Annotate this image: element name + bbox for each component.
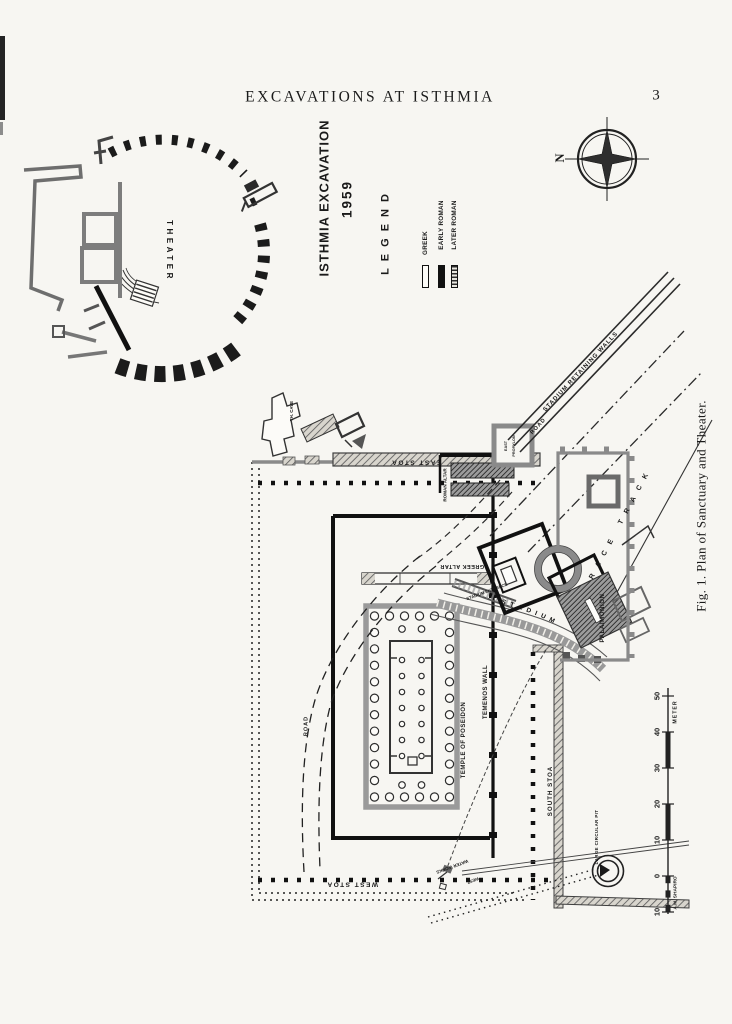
roman-altar-label: ROMAN ALTAR bbox=[444, 468, 449, 501]
theater-plan bbox=[24, 137, 277, 374]
compass-n-label: N bbox=[554, 153, 567, 162]
scale-tick-40: 40 bbox=[653, 728, 661, 736]
greek-altar-label: GREEK ALTAR bbox=[440, 562, 484, 568]
scale-unit-label: METER bbox=[673, 700, 678, 723]
road-west-label: ROAD bbox=[304, 716, 310, 736]
scale-tick-20: 20 bbox=[653, 800, 661, 808]
theater-cave-label: TH. CAVE bbox=[290, 401, 294, 421]
legend-swatch-later-roman bbox=[451, 265, 458, 288]
legend-swatch-early-roman bbox=[438, 265, 445, 288]
plan-title-line2: 1959 bbox=[340, 180, 354, 218]
legend-item-greek: GREEK bbox=[423, 231, 429, 255]
west-stoa-label: WEST STOA bbox=[326, 880, 378, 887]
legend-heading: LEGEND bbox=[381, 187, 392, 275]
scale-tick-minus10: 10 bbox=[653, 908, 661, 916]
south-stoa-label: SOUTH STOA bbox=[548, 766, 554, 816]
page-number: 3 bbox=[652, 89, 660, 104]
roman-altar-structure bbox=[451, 463, 514, 496]
temple-of-poseidon-label: TEMPLE OF POSEIDON bbox=[461, 702, 467, 779]
cartographer-credit: A.M. SHAPIRO bbox=[675, 876, 680, 909]
page-header: EXCAVATIONS AT ISTHMIA bbox=[245, 89, 495, 105]
east-propylon-label-line1: EAST bbox=[505, 441, 509, 451]
theater-cave-structure bbox=[262, 393, 366, 456]
scale-tick-30: 30 bbox=[653, 764, 661, 772]
south-stoa-structure bbox=[533, 645, 689, 908]
east-stoa-label: EAST STOA bbox=[391, 458, 442, 465]
scale-tick-10: 10 bbox=[653, 836, 661, 844]
sanctuary-plan: STADIUM bbox=[252, 272, 712, 923]
scanned-page: STADIUM bbox=[0, 0, 732, 1024]
scan-artifact bbox=[0, 36, 5, 135]
legend-item-early-roman: EARLY ROMAN bbox=[439, 200, 445, 249]
compass-rose bbox=[565, 117, 649, 201]
palaimonion-label: PALAIMONION bbox=[600, 593, 606, 642]
figure-caption: Fig. 1. Plan of Sanctuary and Theater. bbox=[695, 400, 708, 612]
legend-item-later-roman: LATER ROMAN bbox=[452, 200, 458, 249]
plan-title-line1: ISTHMIA EXCAVATION bbox=[318, 120, 331, 277]
temple-of-poseidon-structure bbox=[366, 606, 457, 807]
large-circular-pit-label: LARGE CIRCULAR PIT bbox=[595, 810, 599, 865]
legend-swatch-greek bbox=[422, 265, 429, 288]
east-propylon-label-line2: PROPYLON bbox=[513, 435, 517, 456]
scale-tick-50: 50 bbox=[653, 692, 661, 700]
theater-label: THEATER bbox=[165, 220, 173, 282]
scale-tick-0: 0 bbox=[653, 874, 661, 878]
temenos-wall-label: TEMENOS WALL bbox=[483, 665, 489, 719]
poseidon-precinct-walls bbox=[333, 455, 493, 858]
greek-altar-structure bbox=[362, 573, 490, 584]
